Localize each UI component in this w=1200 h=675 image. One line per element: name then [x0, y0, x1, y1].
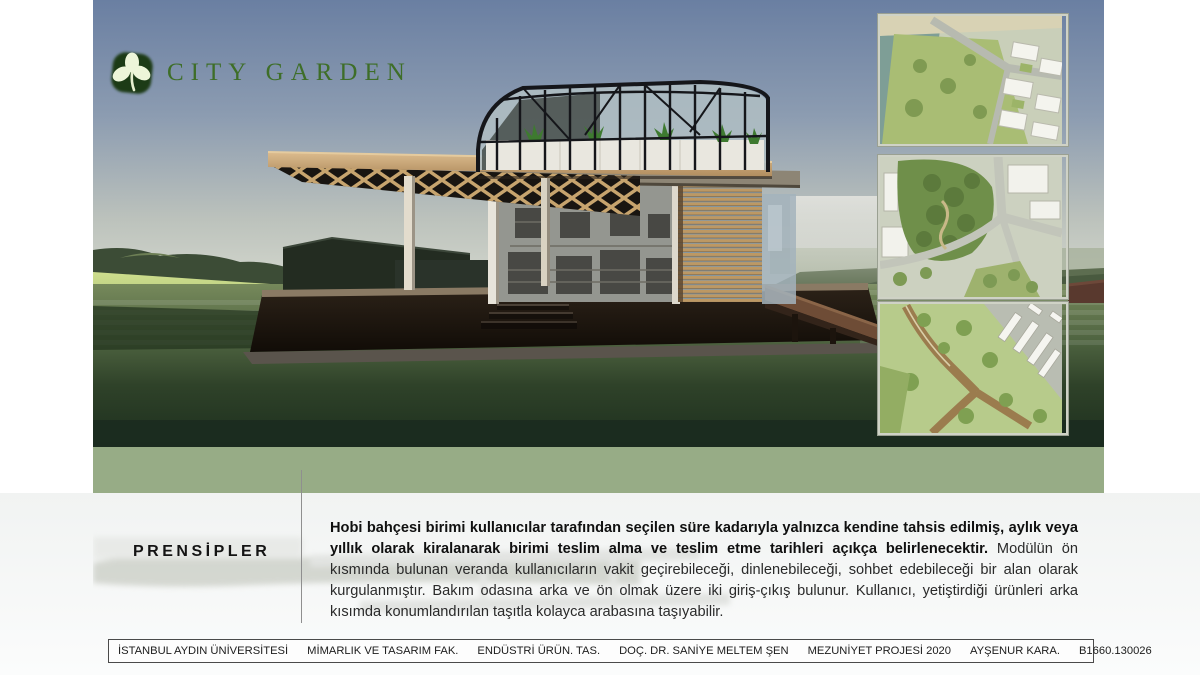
logo-text: CITY GARDEN	[167, 59, 412, 87]
louver-screen	[678, 185, 762, 302]
principles-paragraph: Hobi bahçesi birimi kullanıcılar tarafın…	[330, 518, 1078, 624]
footer-project: MEZUNİYET PROJESİ 2020	[808, 645, 951, 657]
green-band	[93, 447, 1104, 493]
rooftop-greenhouse	[478, 82, 768, 172]
presentation-board: CITY GARDEN	[0, 0, 1200, 675]
section-divider	[301, 470, 302, 623]
footer-student: AYŞENUR KARA.	[970, 645, 1060, 657]
thumbnail-site-plan-3	[878, 302, 1068, 435]
footer-faculty: MİMARLIK VE TASARIM FAK.	[307, 645, 458, 657]
footer-university: İSTANBUL AYDIN ÜNİVERSİTESİ	[118, 645, 288, 657]
section-heading: PRENSİPLER	[133, 543, 270, 561]
leaf-logo-icon	[107, 48, 157, 98]
footer-credits: İSTANBUL AYDIN ÜNİVERSİTESİ MİMARLIK VE …	[108, 639, 1094, 663]
footer-advisor: DOÇ. DR. SANİYE MELTEM ŞEN	[619, 645, 789, 657]
paragraph-lead: Hobi bahçesi birimi kullanıcılar tarafın…	[330, 520, 1078, 557]
logo: CITY GARDEN	[107, 48, 412, 98]
thumbnail-site-plan-2	[878, 155, 1068, 299]
planter-band	[486, 140, 764, 170]
footer-department: ENDÜSTRİ ÜRÜN. TAS.	[477, 645, 600, 657]
thumbnail-site-plan-1	[878, 14, 1068, 146]
footer-student-id: B1660.130026	[1079, 645, 1152, 657]
